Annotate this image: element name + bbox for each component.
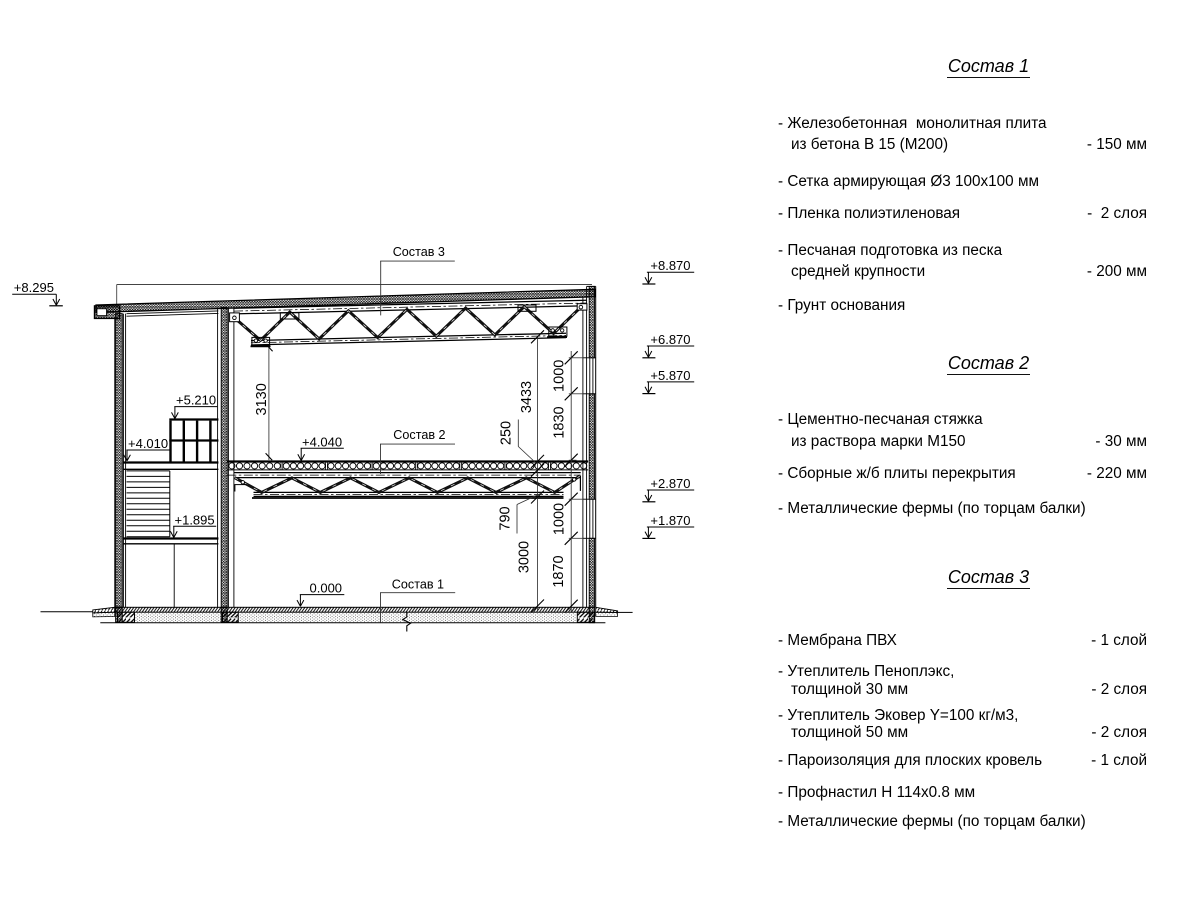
- svg-text:250: 250: [499, 421, 515, 445]
- svg-text:0.000: 0.000: [310, 581, 343, 596]
- svg-text:Состав 1: Состав 1: [392, 578, 444, 592]
- svg-text:3000: 3000: [517, 541, 533, 573]
- svg-text:+4.010: +4.010: [128, 436, 168, 451]
- svg-text:Состав 3: Состав 3: [393, 245, 445, 259]
- svg-text:1830: 1830: [552, 406, 568, 438]
- svg-text:Состав 2: Состав 2: [393, 428, 445, 442]
- svg-text:3130: 3130: [254, 383, 270, 415]
- svg-text:+6.870: +6.870: [650, 332, 690, 347]
- svg-text:+5.210: +5.210: [176, 393, 216, 408]
- svg-text:+2.870: +2.870: [650, 476, 690, 491]
- svg-text:+1.870: +1.870: [650, 513, 690, 528]
- svg-text:790: 790: [498, 506, 514, 530]
- svg-text:1000: 1000: [552, 503, 568, 535]
- svg-text:+1.895: +1.895: [175, 512, 215, 527]
- svg-text:+5.870: +5.870: [650, 368, 690, 383]
- svg-text:3433: 3433: [519, 381, 535, 413]
- svg-text:+8.295: +8.295: [14, 280, 54, 295]
- svg-text:+4.040: +4.040: [302, 434, 342, 449]
- svg-text:+8.870: +8.870: [650, 258, 690, 273]
- svg-text:1870: 1870: [551, 555, 567, 587]
- svg-text:1000: 1000: [552, 360, 568, 392]
